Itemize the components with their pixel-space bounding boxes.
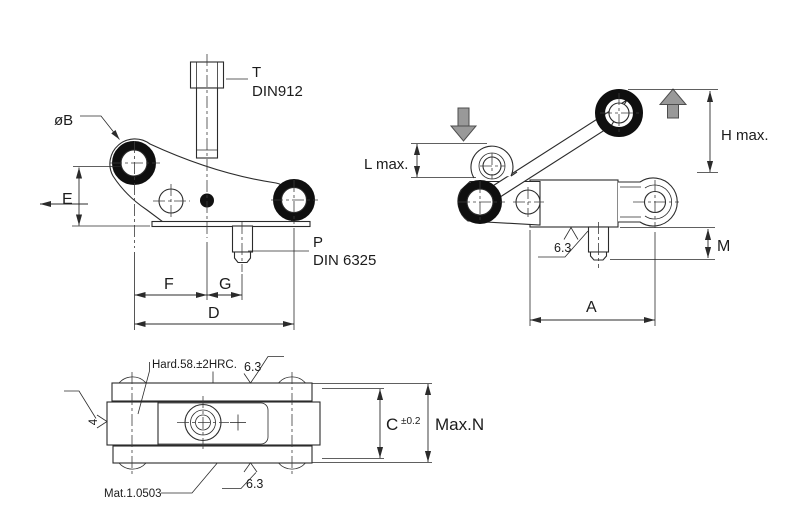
label-dim-a: A (586, 299, 597, 316)
label-dim-e: E (62, 191, 73, 208)
free-roller-bracket (618, 178, 677, 226)
label-hardness: Hard.58.±2HRC. (152, 359, 237, 371)
bottom-bar (113, 446, 312, 463)
clamp-body (530, 180, 618, 227)
technical-drawing-page: T DIN912 øB E F G D P DIN 6325 (0, 0, 786, 509)
label-roughness-left: 4 (88, 418, 100, 425)
label-material: Mat.1.0503 (104, 488, 162, 500)
label-dim-m: M (717, 238, 730, 255)
label-pin-ref: P (313, 234, 323, 251)
base-plate (152, 222, 310, 227)
label-dim-c: C (386, 415, 398, 434)
label-pin-standard: DIN 6325 (313, 252, 376, 269)
press-down-arrow (451, 108, 476, 141)
material-leader (161, 463, 218, 493)
label-screw-ref: T (252, 64, 261, 81)
lift-up-arrow (660, 89, 686, 118)
top-view: Hard.58.±2HRC. 6.3 6.3 4 Mat.1.0503 (64, 357, 484, 501)
label-dim-max-n: Max.N (435, 415, 484, 434)
roughness-symbol-left (64, 391, 107, 428)
label-roughness-top: 6.3 (244, 360, 261, 374)
drawing-canvas: T DIN912 øB E F G D P DIN 6325 (0, 0, 786, 509)
label-dim-d: D (208, 305, 220, 322)
label-dim-f: F (164, 276, 174, 293)
hook-cam (471, 146, 517, 179)
label-dim-g: G (219, 276, 231, 293)
label-roughness-bottom: 6.3 (246, 477, 263, 491)
side-view: 6.3 L max. H max. M A (364, 89, 769, 326)
front-view: T DIN912 øB E F G D P DIN 6325 (40, 54, 376, 330)
label-dim-h-max: H max. (721, 127, 769, 144)
label-dim-c-tol: ±0.2 (401, 416, 421, 427)
label-screw-standard: DIN912 (252, 83, 303, 100)
label-roughness-side-view: 6.3 (554, 241, 571, 255)
label-roller-dia: øB (54, 112, 73, 129)
label-dim-l-max: L max. (364, 156, 408, 173)
dowel-pin (233, 226, 253, 263)
